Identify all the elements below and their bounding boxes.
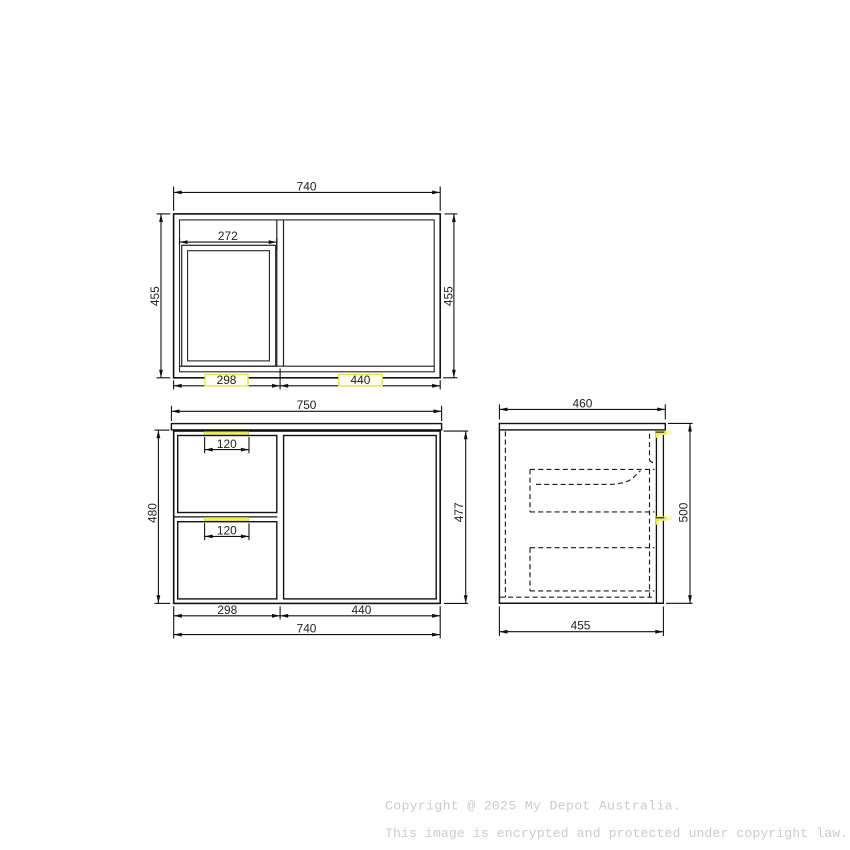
svg-text:298: 298 bbox=[217, 603, 237, 617]
svg-text:120: 120 bbox=[217, 524, 237, 538]
svg-text:477: 477 bbox=[452, 502, 466, 522]
svg-text:298: 298 bbox=[217, 373, 237, 387]
svg-text:272: 272 bbox=[218, 229, 238, 243]
svg-text:480: 480 bbox=[145, 503, 159, 523]
svg-text:120: 120 bbox=[217, 437, 237, 451]
svg-text:This image is encrypted and pr: This image is encrypted and protected un… bbox=[385, 826, 848, 841]
svg-text:Copyright @ 2025 My Depot Aust: Copyright @ 2025 My Depot Australia. bbox=[385, 798, 681, 813]
svg-text:455: 455 bbox=[442, 286, 456, 306]
svg-text:440: 440 bbox=[351, 603, 371, 617]
svg-text:440: 440 bbox=[350, 373, 370, 387]
svg-text:740: 740 bbox=[297, 179, 317, 193]
svg-text:455: 455 bbox=[148, 286, 162, 306]
svg-text:500: 500 bbox=[677, 502, 691, 522]
svg-text:750: 750 bbox=[297, 398, 317, 412]
svg-text:455: 455 bbox=[571, 619, 591, 633]
svg-text:460: 460 bbox=[572, 396, 592, 410]
svg-text:740: 740 bbox=[297, 622, 317, 636]
